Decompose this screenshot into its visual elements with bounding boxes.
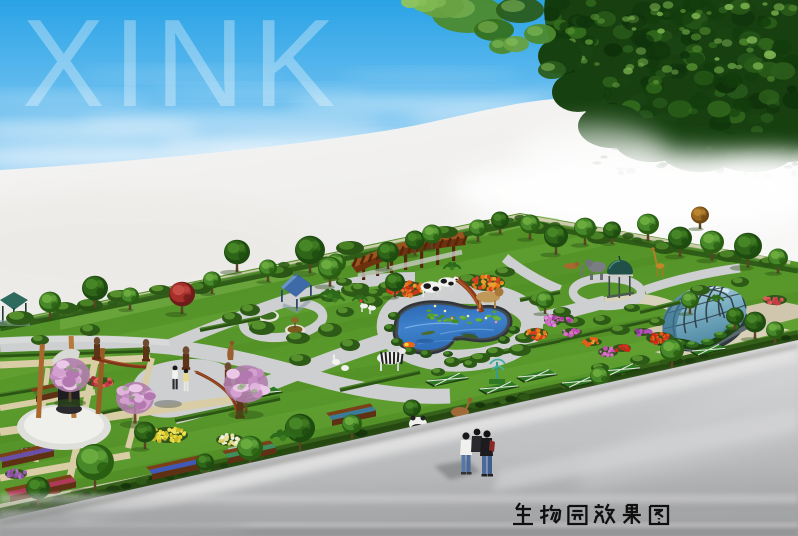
svg-text:XINK: XINK <box>22 0 343 133</box>
